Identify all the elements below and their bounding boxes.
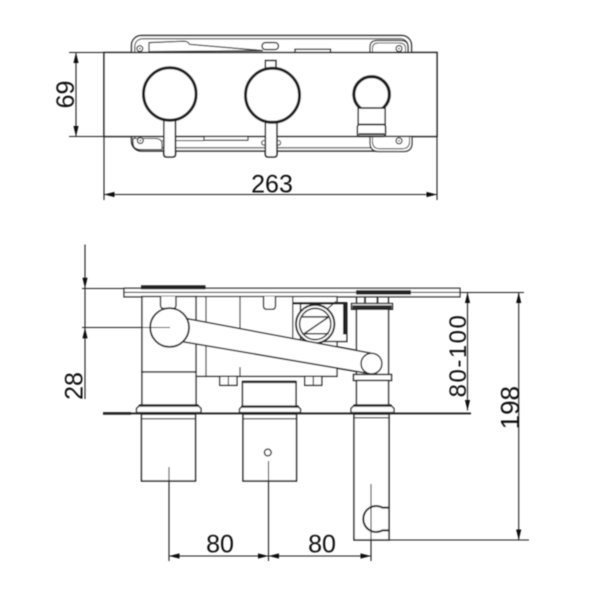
svg-text:80-100: 80-100 [445,314,472,398]
svg-text:80: 80 [308,531,336,559]
svg-text:28: 28 [61,372,89,400]
svg-text:263: 263 [251,171,293,199]
svg-text:198: 198 [495,386,525,429]
svg-text:80: 80 [206,531,234,559]
svg-text:69: 69 [52,81,80,109]
